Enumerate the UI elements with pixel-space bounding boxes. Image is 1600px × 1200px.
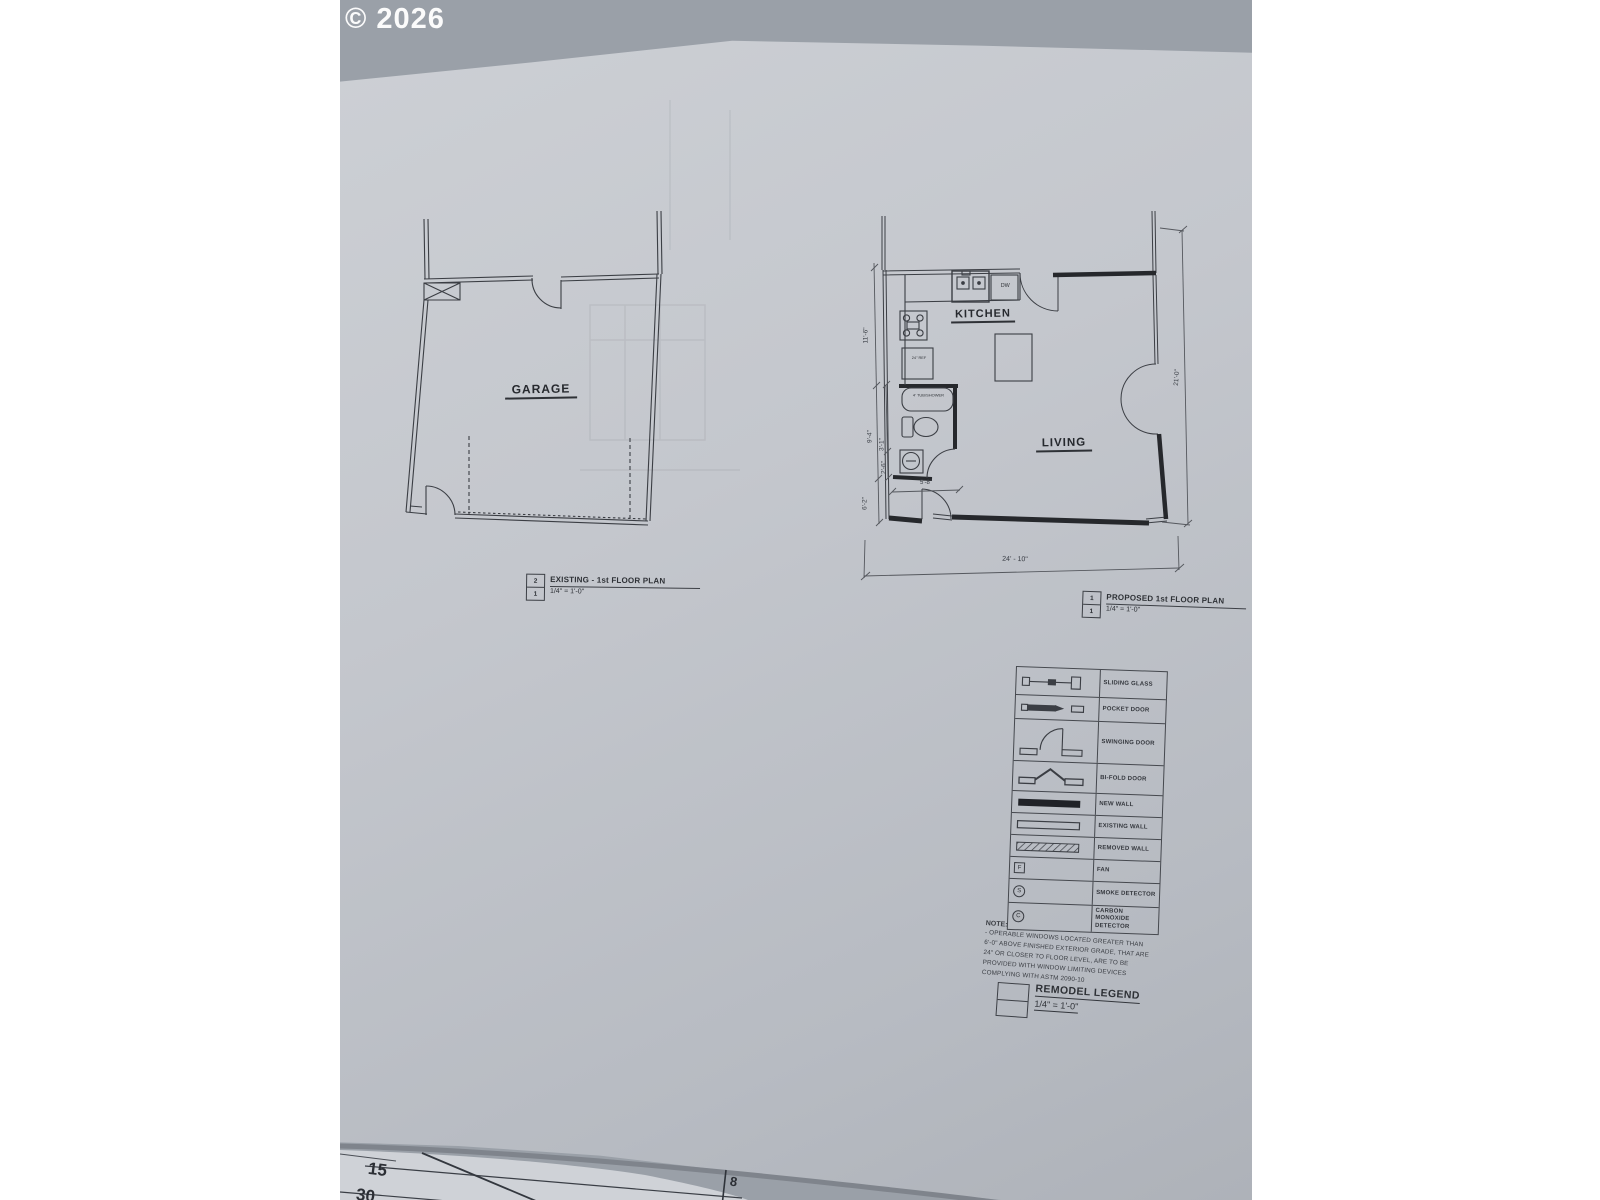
dishwasher-label: DW — [998, 282, 1012, 288]
dim-left-sub2: 2'-6" — [881, 451, 888, 485]
copyright-watermark: © 2026 — [345, 3, 445, 36]
removed-wall-symbol — [1010, 835, 1095, 859]
legend-label: NEW WALL — [1096, 794, 1163, 817]
proposed-callout-number-box: 1 1 — [1082, 591, 1102, 619]
swinging-door-symbol — [1014, 719, 1099, 763]
new-wall-symbol — [1012, 791, 1097, 815]
photo-of-floor-plan-sheet: © 2026 GARAGE KITCHEN LIVING 4' TUB/SHOW… — [340, 0, 1252, 1200]
existing-plan-callout: 2 1 EXISTING - 1st FLOOR PLAN 1/4" = 1'-… — [526, 574, 726, 607]
dim-left-bottom: 6'-2" — [862, 487, 869, 521]
existing-callout-number-box: 2 1 — [526, 574, 545, 601]
living-room-label: LIVING — [1036, 437, 1092, 453]
legend-label: FAN — [1094, 860, 1161, 883]
pocket-door-symbol — [1015, 695, 1100, 721]
refrigerator-label: 24" REF — [908, 356, 930, 361]
kitchen-room-label: KITCHEN — [951, 307, 1015, 323]
remodel-legend-box — [995, 982, 1029, 1018]
proposed-plan-scale: 1/4" = 1'-0" — [1106, 606, 1140, 614]
dim-left-overall: 11'-6" — [863, 319, 870, 353]
dim-left-mid: 9'-4" — [867, 420, 874, 454]
dim-bottom-overall: 24' - 10" — [980, 555, 1050, 563]
under-sheet-number-30: 30 — [355, 1185, 376, 1200]
legend-label: REMOVED WALL — [1094, 838, 1161, 861]
proposed-callout-number: 1 — [1083, 592, 1100, 605]
legend-label: POCKET DOOR — [1099, 698, 1166, 723]
garage-plan-linework — [406, 211, 662, 525]
existing-wall-symbol — [1011, 813, 1096, 837]
existing-callout-sheet: 1 — [527, 587, 544, 600]
fan-glyph: F — [1014, 862, 1025, 873]
bi-fold-door-symbol — [1013, 761, 1098, 793]
legend-row-swinging-door: SWINGING DOOR — [1014, 719, 1165, 766]
fan-symbol: F — [1010, 857, 1095, 881]
legend-label: SMOKE DETECTOR — [1093, 882, 1160, 907]
dim-bath-width: 5'-8" — [906, 480, 946, 486]
legend-label: BI-FOLD DOOR — [1097, 764, 1164, 795]
under-sheet-number-15: 15 — [367, 1159, 388, 1181]
existing-plan-scale: 1/4" = 1'-0" — [550, 588, 584, 595]
existing-callout-number: 2 — [527, 575, 544, 587]
legend-label: SWINGING DOOR — [1098, 722, 1165, 765]
smoke-detector-glyph: S — [1013, 885, 1025, 897]
garage-room-label: GARAGE — [505, 381, 577, 399]
smoke-detector-symbol: S — [1009, 879, 1094, 905]
legend-label: EXISTING WALL — [1095, 816, 1162, 839]
legend-label: SLIDING GLASS — [1100, 670, 1167, 699]
remodel-legend-scale: 1/4" = 1'-0" — [1034, 999, 1079, 1014]
sliding-glass-door-symbol — [1016, 667, 1101, 697]
symbol-legend-table: SLIDING GLASS POCKET DOOR SWINGING DOOR — [1007, 666, 1168, 935]
existing-plan-title: EXISTING - 1st FLOOR PLAN — [550, 575, 700, 589]
proposed-plan-existing-walls — [882, 211, 1167, 523]
co-detector-glyph: C — [1012, 910, 1024, 922]
proposed-callout-sheet: 1 — [1083, 604, 1100, 618]
tub-shower-label: 4' TUB/SHOWER — [905, 393, 952, 398]
dimension-lines — [861, 226, 1192, 580]
proposed-plan-fixtures — [900, 271, 1032, 478]
